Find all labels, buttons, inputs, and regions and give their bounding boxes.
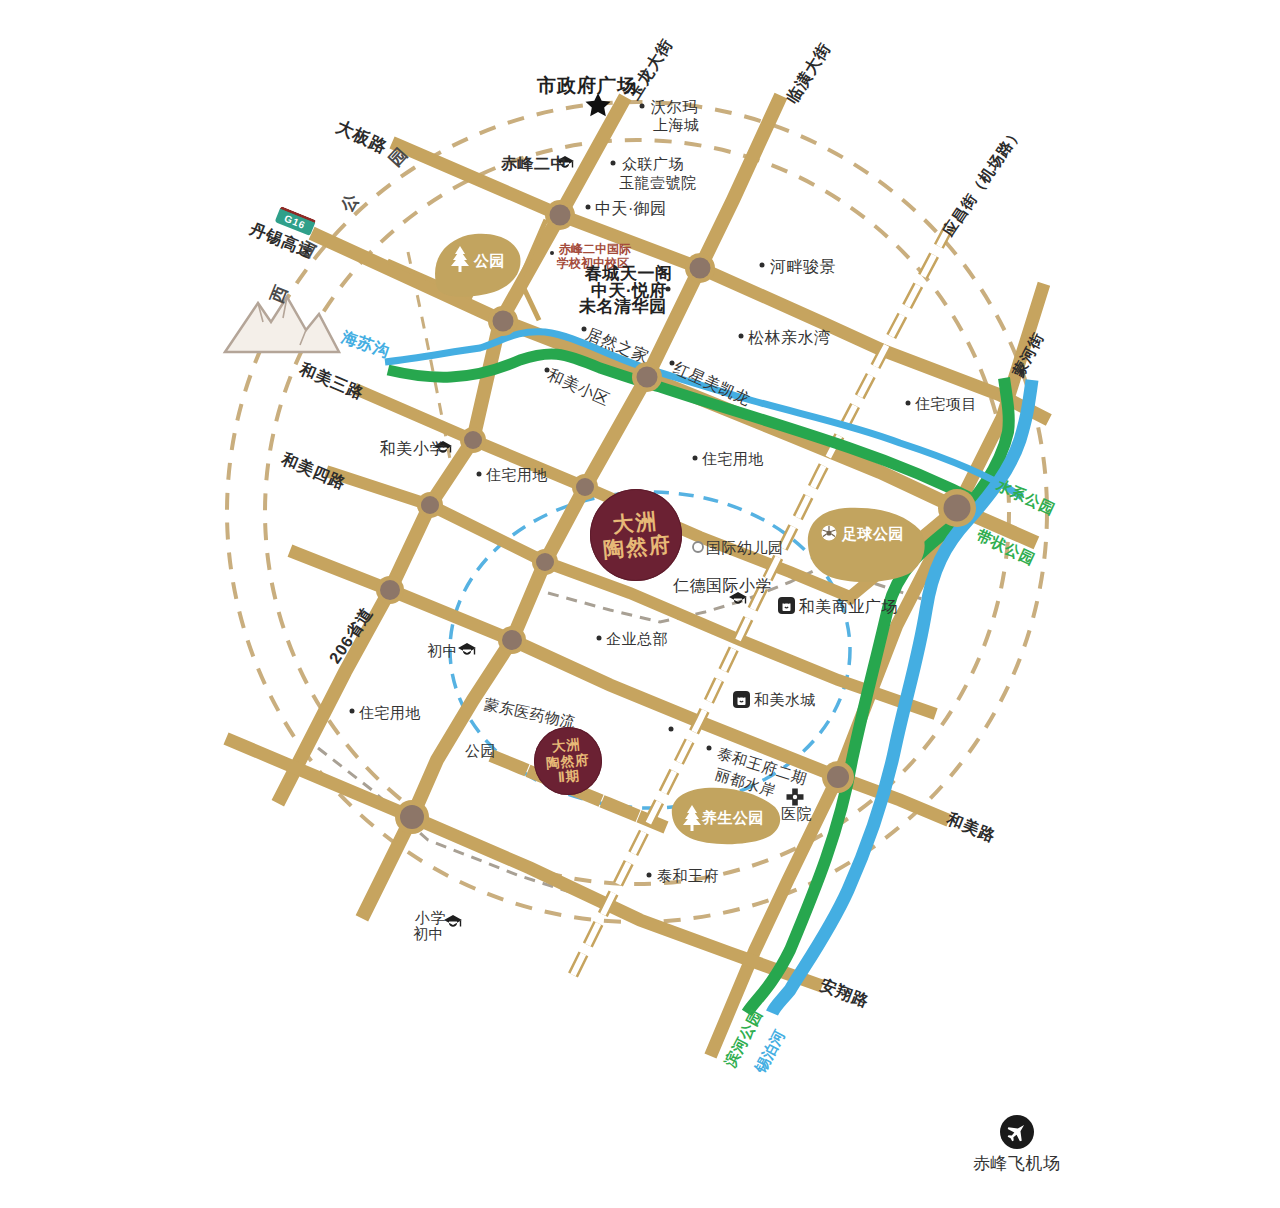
project-marker-phase2: 大洲陶然府Ⅱ期 xyxy=(534,727,602,795)
hospital-cross-icon xyxy=(787,789,804,806)
park-label-nw: 公园 xyxy=(474,253,505,270)
park-label-small: 公园 xyxy=(465,743,496,760)
kindergarten-icon xyxy=(693,542,703,552)
poi-intl-school: 赤峰二中国际 xyxy=(559,243,631,256)
poi-zhonglian: 玉龍壹號院 xyxy=(619,175,697,192)
poi-shangye: 和美商业广场 xyxy=(799,598,898,616)
poi-chuzhong-2: 初中 xyxy=(413,926,444,943)
mall-icon-shangye xyxy=(778,597,795,614)
poi-rende: 仁德国际小学 xyxy=(673,577,772,595)
school-icon-xiaoxue-chuzhong xyxy=(444,915,462,927)
poi-zhuzhai-1: 住宅用地 xyxy=(486,467,548,484)
park-label-football: 足球公园 xyxy=(842,526,904,543)
poi-kindergarten: 国际幼儿园 xyxy=(706,540,784,557)
poi-zhuzhai-xiangmu: 住宅项目 xyxy=(915,396,977,413)
poi-zhuzhai-2: 住宅用地 xyxy=(702,451,764,468)
mall-icon-shuicheng xyxy=(733,691,750,708)
poi-qiye: 企业总部 xyxy=(606,631,668,648)
park-football xyxy=(808,508,925,582)
poi-walmart: 上海城 xyxy=(653,117,700,134)
soccer-icon xyxy=(822,526,837,541)
poi-zhonglian: 众联广场 xyxy=(622,156,684,173)
poi-walmart: 沃尔玛 xyxy=(651,99,698,116)
poi-airport: 赤峰飞机场 xyxy=(973,1155,1061,1174)
poi-chuzhong: 初中 xyxy=(427,643,458,660)
poi-weiming-qinghuayuan: 未名清华园 xyxy=(579,298,667,317)
project-name-line: 陶然府 xyxy=(602,532,673,562)
poi-shuicheng: 和美水城 xyxy=(754,692,816,709)
poi-city-hall: 市政府广场 xyxy=(537,76,637,97)
location-map: 大板路 玉龙大街 临潢大街 应昌街（机场路） 蒙河街 丹锡高速 G16 和美三路… xyxy=(0,0,1280,1208)
airport-plane-icon xyxy=(1000,1115,1034,1149)
poi-zhongtian-yuyuan: 中天·御园 xyxy=(595,200,667,218)
poi-songlin: 松林亲水湾 xyxy=(748,329,831,347)
mountain-icon xyxy=(225,297,339,352)
project-marker-main: 大洲陶然府 xyxy=(590,489,682,581)
poi-hepan: 河畔骏景 xyxy=(770,258,836,276)
poi-taihe: 泰和王府 xyxy=(657,868,719,885)
poi-zhuzhai-3: 住宅用地 xyxy=(359,705,421,722)
park-label-yangsheng: 养生公园 xyxy=(702,810,764,827)
poi-hospital: 医院 xyxy=(781,806,812,823)
school-icon-chuzhong xyxy=(458,643,476,655)
poi-chifeng-no2: 赤峰二中 xyxy=(501,155,567,173)
poi-hemei-xiaoxue: 和美小学 xyxy=(380,440,446,458)
